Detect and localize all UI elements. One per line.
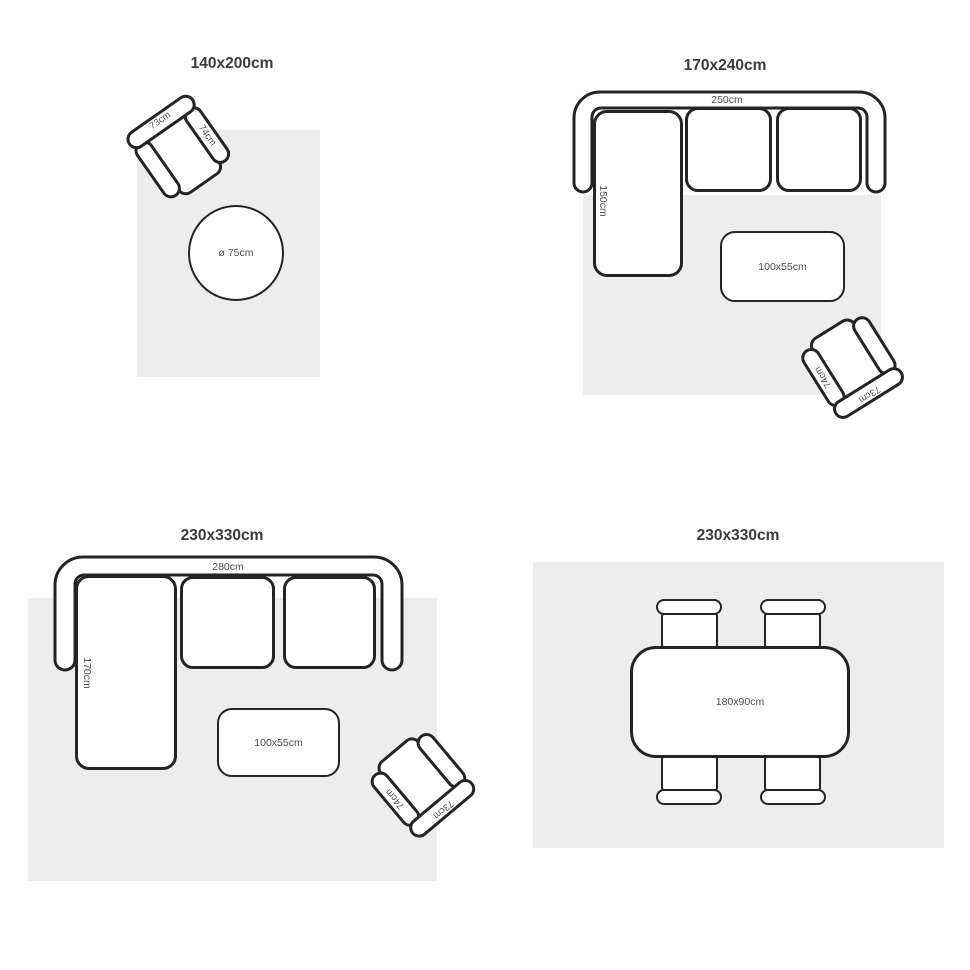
panel-title: 170x240cm — [684, 57, 767, 75]
panel-rug-170x240: 170x240cm 250cm 150cm 100x55cm 73cm 74cm — [485, 0, 970, 485]
coffee-table-size-label: 100x55cm — [254, 737, 302, 749]
sofa-chaise-label: 170cm — [81, 655, 93, 691]
dining-chair-seat — [764, 613, 821, 648]
dining-chair-backrest — [760, 789, 826, 805]
sofa-cushion — [776, 107, 862, 192]
coffee-table: 100x55cm — [217, 708, 340, 777]
dining-chair-seat — [661, 756, 718, 791]
sofa-cushion — [283, 576, 376, 669]
panel-rug-230x330-dining: 230x330cm 180x90cm — [485, 485, 970, 970]
sofa-width-label: 280cm — [212, 561, 244, 573]
sofa-cushion — [180, 576, 275, 669]
dining-chair-seat — [661, 613, 718, 648]
panel-title: 230x330cm — [181, 527, 264, 545]
dining-chair-backrest — [760, 599, 826, 615]
dining-table: 180x90cm — [630, 646, 850, 758]
dining-chair-backrest — [656, 789, 722, 805]
sofa-chaise-label: 150cm — [597, 183, 609, 219]
panel-rug-140x200: 140x200cm ø 75cm 73cm 74cm — [0, 0, 485, 485]
dining-table-size-label: 180x90cm — [716, 696, 764, 708]
panel-rug-230x330-sofa: 230x330cm 280cm 170cm 100x55cm 73cm 74cm — [0, 485, 485, 970]
round-table: ø 75cm — [188, 205, 284, 301]
sofa-width-label: 250cm — [711, 94, 743, 106]
dining-chair-backrest — [656, 599, 722, 615]
coffee-table: 100x55cm — [720, 231, 845, 302]
panel-title: 140x200cm — [191, 55, 274, 73]
dining-chair-seat — [764, 756, 821, 791]
round-table-diameter-label: ø 75cm — [218, 247, 253, 259]
sofa-cushion — [685, 107, 772, 192]
rug-size-guide: { "figure_title": "Rug size guide with f… — [0, 0, 970, 970]
panel-title: 230x330cm — [697, 527, 780, 545]
coffee-table-size-label: 100x55cm — [758, 261, 806, 273]
